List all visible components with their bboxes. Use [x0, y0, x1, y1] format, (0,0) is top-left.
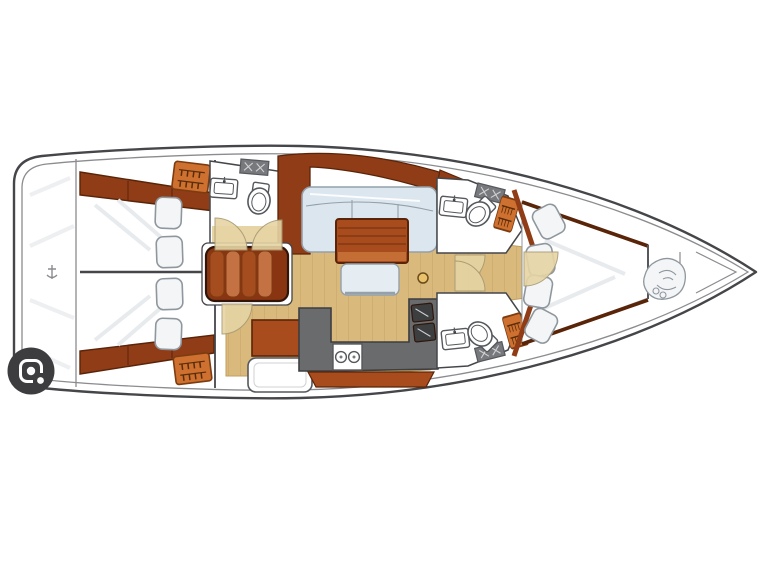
- bench-seat: [341, 264, 399, 295]
- companionway-stairs: [202, 243, 292, 305]
- saloon-table: [336, 219, 408, 263]
- pillow: [156, 236, 183, 268]
- pillow: [155, 197, 182, 229]
- stove-two-burners: [333, 344, 362, 370]
- sink: [210, 176, 238, 199]
- lens-search-button[interactable]: [8, 348, 55, 395]
- pillow: [156, 278, 183, 310]
- counter-hatch: [240, 159, 269, 175]
- hanging-locker: [173, 353, 212, 385]
- hanging-locker: [172, 161, 211, 193]
- boat-floor-plan: [0, 0, 768, 576]
- galley-trim: [308, 372, 434, 387]
- pillow: [155, 318, 182, 350]
- screenshot-canvas: [0, 0, 768, 576]
- mast-step: [418, 273, 428, 283]
